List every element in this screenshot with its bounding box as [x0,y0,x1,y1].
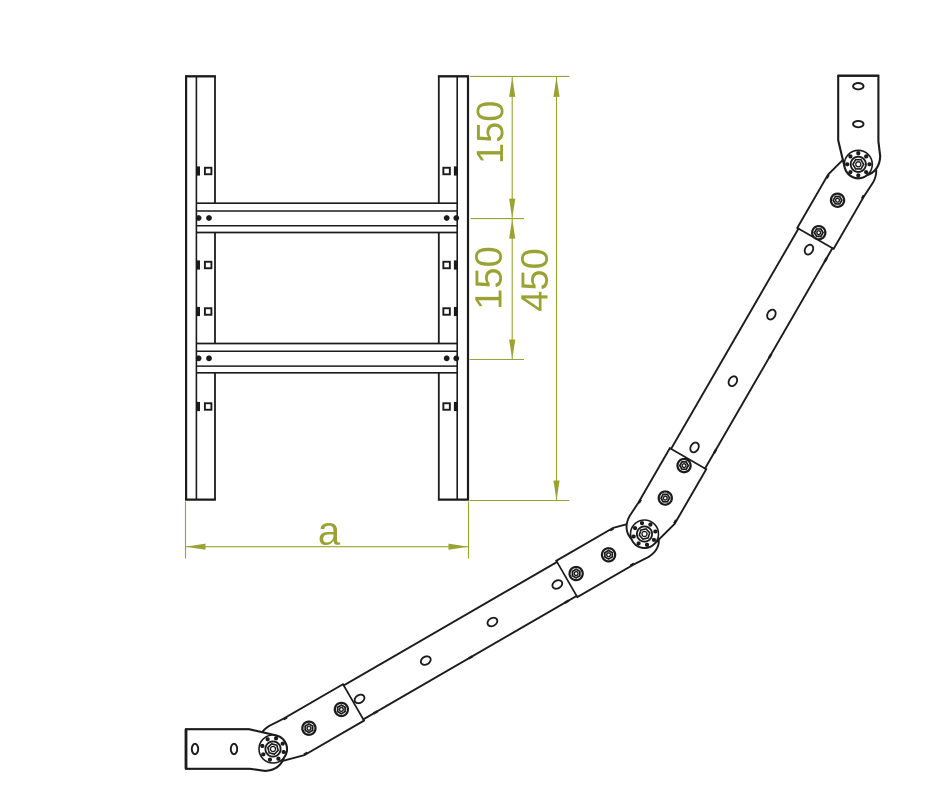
svg-text:150: 150 [470,101,512,164]
svg-text:150: 150 [469,246,511,309]
svg-text:450: 450 [515,248,557,311]
svg-text:a: a [318,510,341,554]
